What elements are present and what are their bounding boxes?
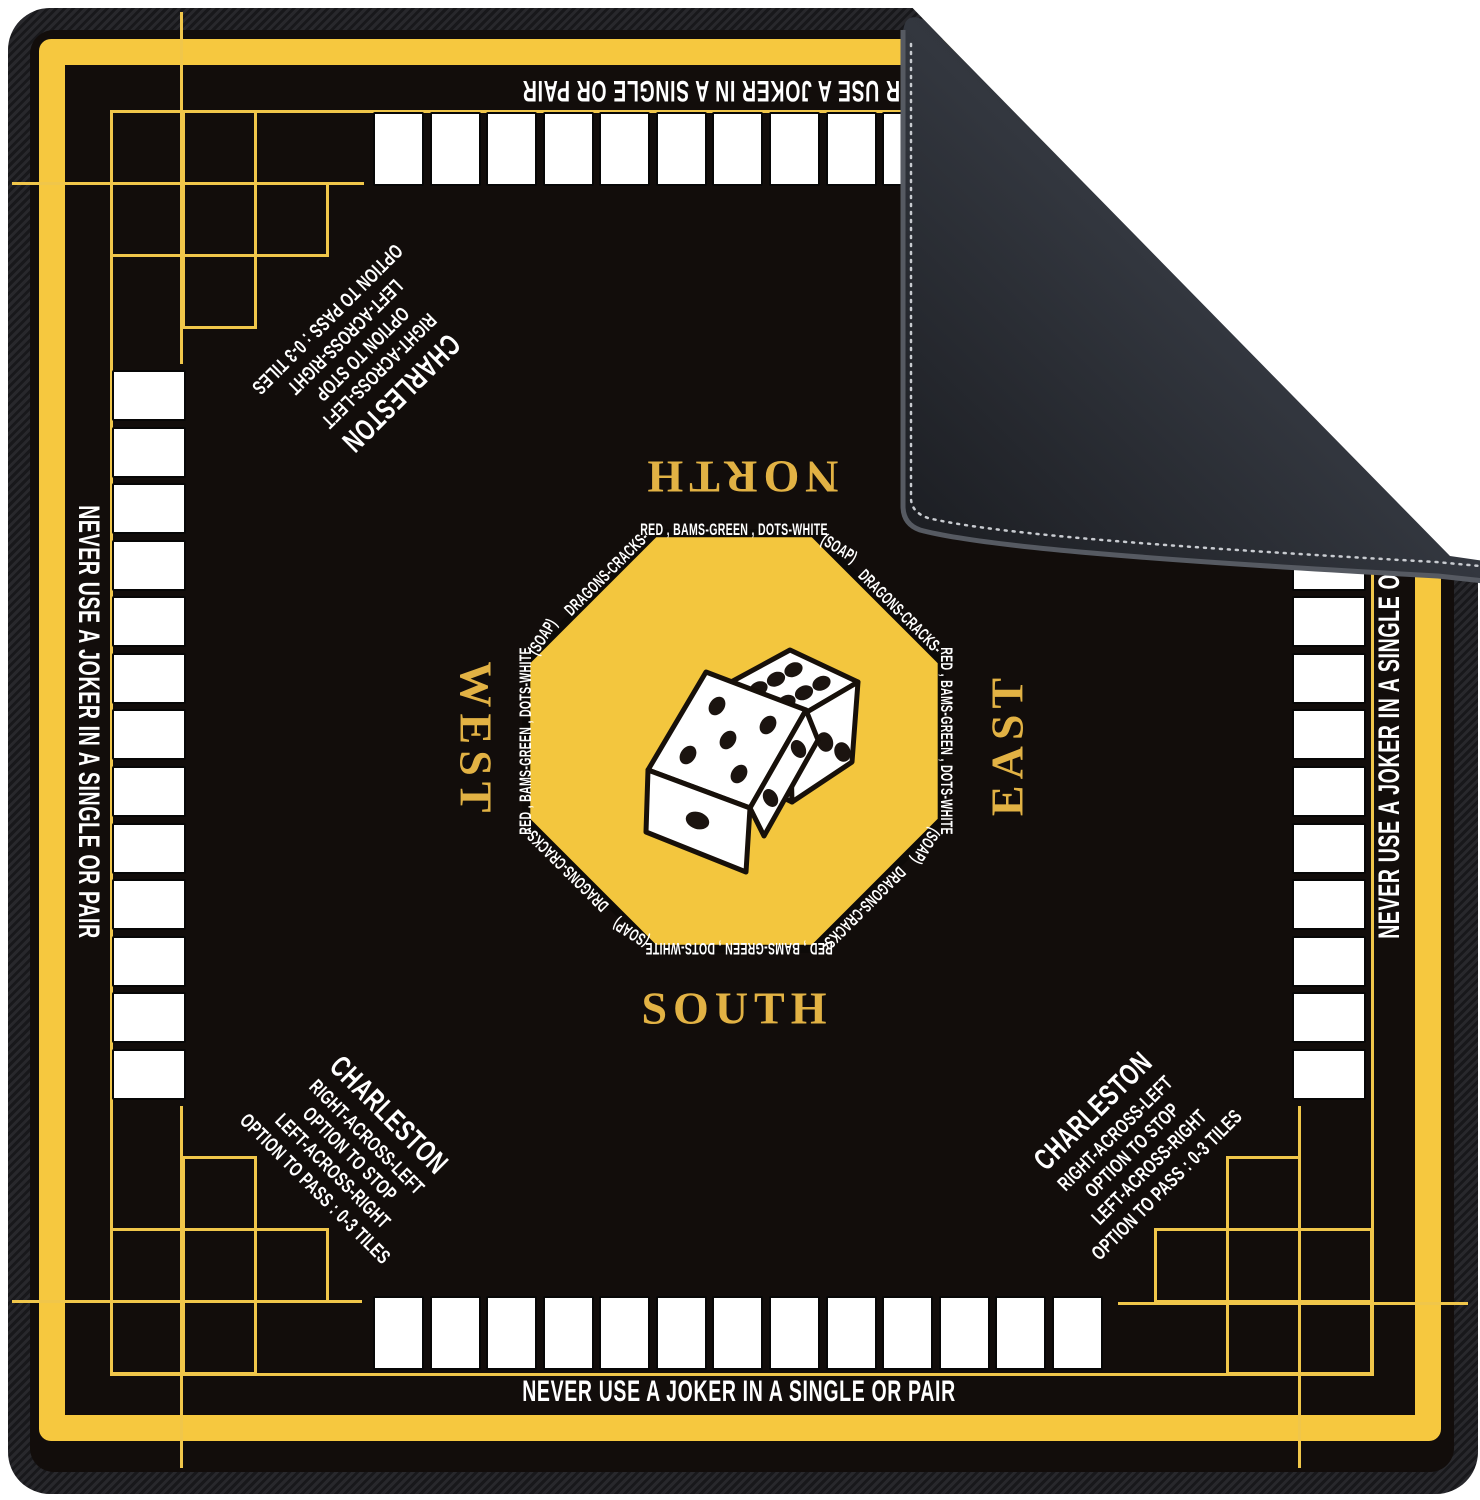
product-photo: NEVER USE A JOKER IN A SINGLE OR PAIR NE…: [0, 0, 1480, 1500]
folded-corner: [0, 0, 1480, 1500]
